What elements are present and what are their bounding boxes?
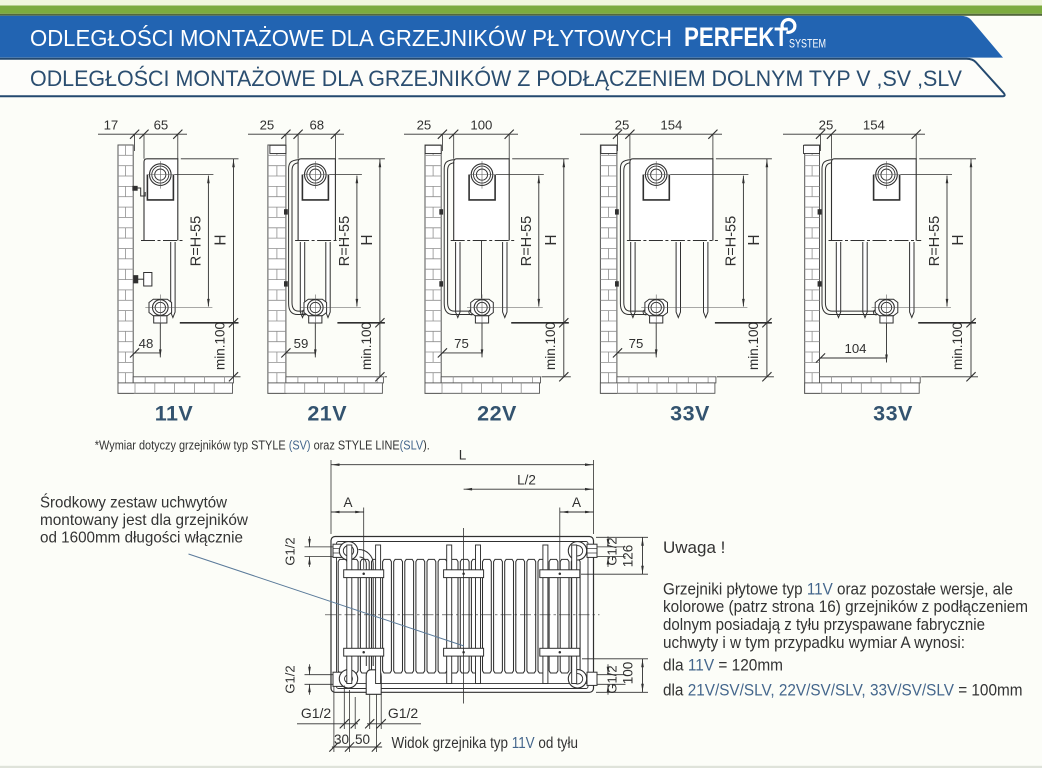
svg-text:montowany jest dla grzejników: montowany jest dla grzejników (40, 512, 249, 529)
svg-text:min.100: min.100 (213, 322, 228, 370)
svg-text:48: 48 (139, 336, 154, 351)
svg-text:H: H (746, 234, 763, 245)
svg-text:G1/2: G1/2 (283, 537, 298, 565)
svg-text:104: 104 (844, 341, 866, 356)
svg-text:59: 59 (294, 336, 309, 351)
svg-text:25: 25 (260, 117, 275, 132)
svg-text:22V: 22V (477, 402, 517, 426)
svg-text:100: 100 (470, 117, 492, 132)
svg-text:154: 154 (863, 117, 885, 132)
svg-text:H: H (543, 234, 560, 245)
svg-text:21V: 21V (307, 402, 347, 426)
svg-text:126: 126 (621, 545, 636, 568)
svg-text:G1/2: G1/2 (605, 537, 620, 565)
svg-text:min.100: min.100 (950, 322, 965, 370)
svg-text:dla 11V = 120mm: dla 11V = 120mm (663, 656, 783, 675)
svg-text:30: 30 (334, 732, 349, 747)
svg-text:R=H-55: R=H-55 (337, 216, 353, 266)
svg-text:75: 75 (629, 336, 644, 351)
svg-text:100: 100 (621, 662, 636, 685)
svg-text:min.100: min.100 (746, 322, 761, 370)
svg-text:PERFEKT: PERFEKT (684, 22, 788, 52)
svg-text:17: 17 (104, 117, 119, 132)
svg-text:A: A (343, 495, 352, 510)
svg-text:min.100: min.100 (543, 322, 558, 370)
svg-text:SYSTEM: SYSTEM (789, 37, 826, 51)
svg-text:Grzejniki płytowe typ 11V oraz: Grzejniki płytowe typ 11V oraz pozostałe… (663, 579, 1013, 598)
svg-text:H: H (950, 234, 967, 245)
svg-text:33V: 33V (670, 402, 710, 426)
svg-text:min.100: min.100 (359, 322, 374, 370)
svg-text:R=H-55: R=H-55 (723, 216, 739, 266)
svg-text:154: 154 (660, 117, 682, 132)
svg-text:G1/2: G1/2 (605, 665, 620, 693)
svg-text:75: 75 (454, 336, 469, 351)
svg-text:L: L (459, 448, 467, 463)
svg-text:G1/2: G1/2 (283, 665, 298, 693)
svg-text:A: A (572, 495, 581, 510)
svg-text:od 1600mm długości włącznie: od 1600mm długości włącznie (40, 529, 243, 546)
svg-text:H: H (213, 234, 230, 245)
svg-text:L/2: L/2 (517, 473, 536, 488)
svg-text:dolnym posiadają z tyłu przysp: dolnym posiadają z tyłu przyspawane fabr… (663, 615, 985, 634)
svg-text:Widok grzejnika typ 11V od tył: Widok grzejnika typ 11V od tyłu (392, 735, 579, 752)
svg-text:65: 65 (154, 117, 169, 132)
svg-text:*Wymiar dotyczy grzejników typ: *Wymiar dotyczy grzejników typ STYLE (SV… (95, 437, 430, 452)
svg-text:68: 68 (309, 117, 324, 132)
svg-text:Środkowy zestaw uchwytów: Środkowy zestaw uchwytów (40, 492, 228, 511)
svg-text:25: 25 (615, 117, 630, 132)
svg-text:R=H-55: R=H-55 (519, 216, 535, 266)
svg-text:R=H-55: R=H-55 (927, 216, 943, 266)
svg-text:G1/2: G1/2 (388, 705, 419, 721)
svg-text:33V: 33V (873, 402, 913, 426)
svg-text:ODLEGŁOŚCI MONTAŻOWE DLA GRZ: ODLEGŁOŚCI MONTAŻOWE DLA GRZEJNIKÓW PŁYT… (30, 24, 672, 51)
svg-text:50: 50 (355, 732, 370, 747)
svg-text:R=H-55: R=H-55 (188, 216, 204, 266)
svg-text:dla 21V/SV/SLV, 22V/SV/SLV, 33: dla 21V/SV/SLV, 22V/SV/SLV, 33V/SV/SLV =… (663, 680, 1023, 699)
svg-text:kolorowe (patrz strona 16) grz: kolorowe (patrz strona 16) grzejników z … (663, 597, 1028, 616)
svg-text:G1/2: G1/2 (301, 705, 332, 721)
svg-text:H: H (359, 234, 376, 245)
svg-text:ODLEGŁOŚCI MONTAŻOWE DLA GRZEJ: ODLEGŁOŚCI MONTAŻOWE DLA GRZEJNIKÓW Z PO… (30, 66, 962, 91)
svg-text:25: 25 (417, 117, 432, 132)
svg-text:11V: 11V (155, 402, 194, 426)
svg-text:25: 25 (819, 117, 834, 132)
svg-text:Uwaga !: Uwaga ! (663, 538, 725, 557)
svg-text:uchwyty i w tym przypadku wymi: uchwyty i w tym przypadku wymiar A wynos… (663, 633, 965, 652)
